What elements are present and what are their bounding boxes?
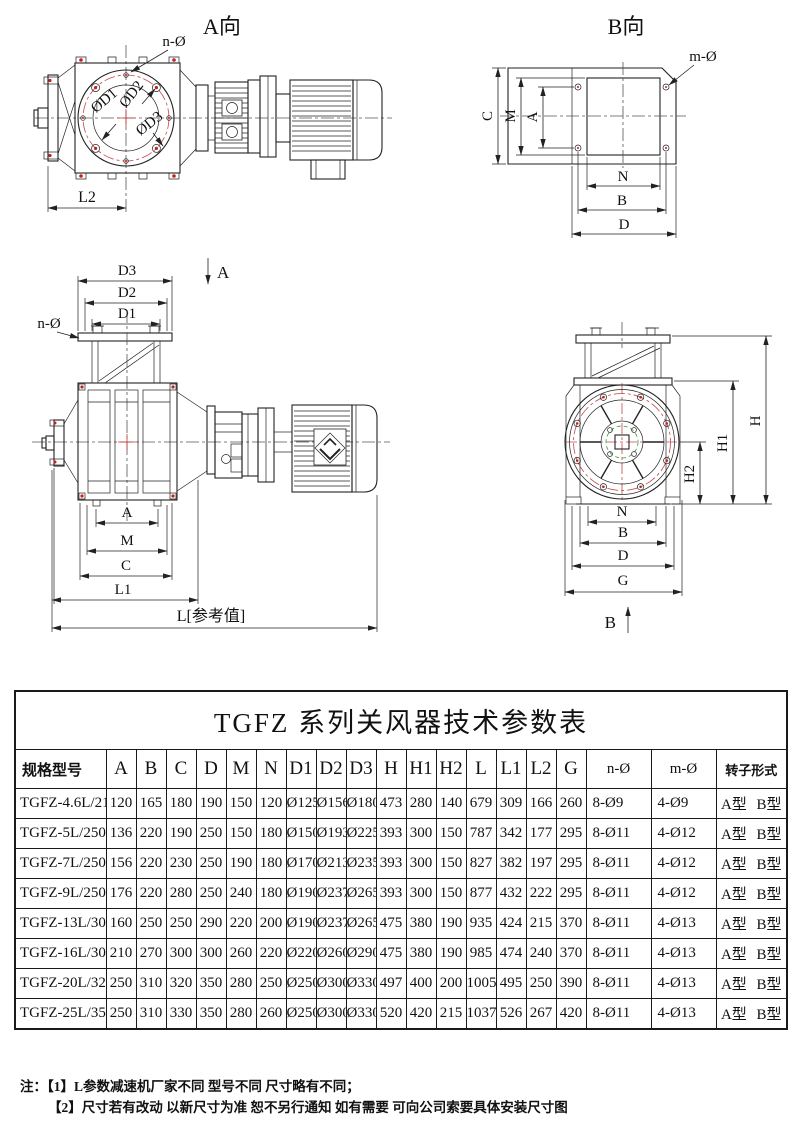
model-cell: TGFZ-9L/250 bbox=[15, 879, 106, 909]
value-cell: Ø213 bbox=[316, 849, 346, 879]
note-prefix: 注： bbox=[20, 1079, 47, 1094]
value-cell: 190 bbox=[226, 849, 256, 879]
value-cell: 4-Ø13 bbox=[651, 969, 716, 999]
value-cell: 220 bbox=[136, 819, 166, 849]
a-dim-label: A bbox=[525, 111, 541, 122]
value-cell: 393 bbox=[376, 819, 406, 849]
value-cell: 4-Ø12 bbox=[651, 879, 716, 909]
value-cell: Ø250 bbox=[286, 999, 316, 1030]
value-cell: 342 bbox=[496, 819, 526, 849]
m-dim-front: M bbox=[120, 533, 133, 549]
value-cell: 935 bbox=[466, 909, 496, 939]
value-cell: A型 B型 bbox=[716, 819, 787, 849]
column-header: n-Ø bbox=[586, 750, 651, 789]
value-cell: 420 bbox=[406, 999, 436, 1030]
model-cell: TGFZ-20L/320 bbox=[15, 969, 106, 999]
value-cell: 309 bbox=[496, 789, 526, 819]
column-header: H1 bbox=[406, 750, 436, 789]
value-cell: 220 bbox=[136, 879, 166, 909]
value-cell: 8-Ø11 bbox=[586, 939, 651, 969]
value-cell: 4-Ø13 bbox=[651, 939, 716, 969]
value-cell: 4-Ø12 bbox=[651, 849, 716, 879]
value-cell: 267 bbox=[526, 999, 556, 1030]
value-cell: 295 bbox=[556, 849, 586, 879]
value-cell: 310 bbox=[136, 969, 166, 999]
column-header: 规格型号 bbox=[15, 750, 106, 789]
value-cell: 8-Ø11 bbox=[586, 999, 651, 1030]
d-dim-label: D bbox=[619, 217, 630, 233]
value-cell: 4-Ø9 bbox=[651, 789, 716, 819]
value-cell: A型 B型 bbox=[716, 969, 787, 999]
front-view-drawing: A D3 D2 D1 n-Ø bbox=[32, 258, 390, 632]
table-row: TGFZ-7L/250156220230250190180Ø170Ø213Ø23… bbox=[15, 849, 787, 879]
column-header: D bbox=[196, 750, 226, 789]
value-cell: 497 bbox=[376, 969, 406, 999]
value-cell: 260 bbox=[226, 939, 256, 969]
column-header: M bbox=[226, 750, 256, 789]
section-b-label: B bbox=[605, 613, 616, 632]
value-cell: 290 bbox=[196, 909, 226, 939]
value-cell: 220 bbox=[256, 939, 286, 969]
value-cell: 679 bbox=[466, 789, 496, 819]
value-cell: A型 B型 bbox=[716, 879, 787, 909]
table-row: TGFZ-9L/250176220280250240180Ø190Ø237Ø26… bbox=[15, 879, 787, 909]
value-cell: 320 bbox=[166, 969, 196, 999]
b-dim-end: B bbox=[618, 525, 628, 541]
value-cell: Ø190 bbox=[286, 909, 316, 939]
value-cell: Ø156 bbox=[316, 789, 346, 819]
table-header-row: 规格型号ABCDMND1D2D3HH1H2LL1L2Gn-Øm-Ø转子形式 bbox=[15, 750, 787, 789]
value-cell: 8-Ø11 bbox=[586, 819, 651, 849]
value-cell: 300 bbox=[406, 849, 436, 879]
l2-dim-label: L2 bbox=[78, 189, 96, 206]
motor bbox=[290, 80, 353, 160]
value-cell: A型 B型 bbox=[716, 789, 787, 819]
value-cell: Ø265 bbox=[346, 909, 376, 939]
value-cell: Ø300 bbox=[316, 999, 346, 1030]
value-cell: 280 bbox=[406, 789, 436, 819]
g-dim-label: G bbox=[618, 573, 629, 589]
value-cell: 495 bbox=[496, 969, 526, 999]
value-cell: 4-Ø12 bbox=[651, 819, 716, 849]
value-cell: A型 B型 bbox=[716, 999, 787, 1030]
value-cell: 150 bbox=[436, 879, 466, 909]
value-cell: 190 bbox=[196, 789, 226, 819]
column-header: H bbox=[376, 750, 406, 789]
d3-dia-label: ØD3 bbox=[133, 109, 166, 140]
value-cell: 295 bbox=[556, 879, 586, 909]
column-header: L bbox=[466, 750, 496, 789]
value-cell: 250 bbox=[256, 969, 286, 999]
inlet-flange-front bbox=[78, 326, 172, 383]
table-row: TGFZ-5L/250136220190250150180Ø150Ø193Ø22… bbox=[15, 819, 787, 849]
value-cell: Ø290 bbox=[346, 939, 376, 969]
value-cell: Ø180 bbox=[346, 789, 376, 819]
value-cell: 526 bbox=[496, 999, 526, 1030]
value-cell: 370 bbox=[556, 909, 586, 939]
value-cell: 300 bbox=[166, 939, 196, 969]
l-ref-dim-label: L[参考值] bbox=[177, 607, 245, 625]
column-header: A bbox=[106, 750, 136, 789]
table-row: TGFZ-20L/320250310320350280250Ø250Ø300Ø3… bbox=[15, 969, 787, 999]
value-cell: 380 bbox=[406, 939, 436, 969]
shaft-end-front bbox=[42, 400, 78, 483]
value-cell: 382 bbox=[496, 849, 526, 879]
value-cell: Ø235 bbox=[346, 849, 376, 879]
value-cell: 250 bbox=[106, 999, 136, 1030]
value-cell: 220 bbox=[136, 849, 166, 879]
valve-housing-front bbox=[78, 383, 177, 506]
value-cell: 250 bbox=[526, 969, 556, 999]
value-cell: 250 bbox=[196, 879, 226, 909]
value-cell: 190 bbox=[436, 939, 466, 969]
a-view-drawing: A向 bbox=[34, 14, 392, 215]
value-cell: 8-Ø11 bbox=[586, 969, 651, 999]
column-header: 转子形式 bbox=[716, 750, 787, 789]
value-cell: 400 bbox=[406, 969, 436, 999]
value-cell: 432 bbox=[496, 879, 526, 909]
value-cell: 220 bbox=[226, 909, 256, 939]
value-cell: 330 bbox=[166, 999, 196, 1030]
datasheet-page: A向 bbox=[0, 0, 800, 1145]
value-cell: 300 bbox=[196, 939, 226, 969]
gearbox-motor-side bbox=[180, 70, 382, 179]
value-cell: 250 bbox=[136, 909, 166, 939]
d2-dim-label: D2 bbox=[118, 285, 136, 301]
h-dim-label: H bbox=[748, 415, 764, 426]
value-cell: 393 bbox=[376, 849, 406, 879]
column-header: C bbox=[166, 750, 196, 789]
value-cell: 280 bbox=[226, 999, 256, 1030]
value-cell: 380 bbox=[406, 909, 436, 939]
value-cell: 250 bbox=[196, 849, 226, 879]
value-cell: 8-Ø11 bbox=[586, 849, 651, 879]
value-cell: 350 bbox=[196, 999, 226, 1030]
value-cell: 200 bbox=[256, 909, 286, 939]
value-cell: 160 bbox=[106, 909, 136, 939]
value-cell: 475 bbox=[376, 909, 406, 939]
value-cell: 787 bbox=[466, 819, 496, 849]
d3-dim-label: D3 bbox=[118, 263, 136, 279]
technical-drawings: A向 bbox=[0, 0, 800, 660]
value-cell: 197 bbox=[526, 849, 556, 879]
value-cell: 310 bbox=[136, 999, 166, 1030]
value-cell: Ø237 bbox=[316, 879, 346, 909]
value-cell: 120 bbox=[106, 789, 136, 819]
b-dim-label: B bbox=[617, 193, 627, 209]
value-cell: 250 bbox=[106, 969, 136, 999]
value-cell: 190 bbox=[166, 819, 196, 849]
column-header: D3 bbox=[346, 750, 376, 789]
parameter-table: TGFZ 系列关风器技术参数表 规格型号ABCDMND1D2D3HH1H2LL1… bbox=[14, 690, 788, 1030]
value-cell: 180 bbox=[256, 879, 286, 909]
table-row: TGFZ-16L/300210270300300260220Ø220Ø260Ø2… bbox=[15, 939, 787, 969]
value-cell: A型 B型 bbox=[716, 939, 787, 969]
value-cell: Ø260 bbox=[316, 939, 346, 969]
table-title-row: TGFZ 系列关风器技术参数表 bbox=[15, 691, 787, 750]
value-cell: A型 B型 bbox=[716, 909, 787, 939]
value-cell: Ø220 bbox=[286, 939, 316, 969]
a-dim-front: A bbox=[122, 505, 133, 521]
d2-dia-label: ØD2 bbox=[117, 78, 148, 111]
value-cell: 136 bbox=[106, 819, 136, 849]
model-cell: TGFZ-25L/350 bbox=[15, 999, 106, 1030]
value-cell: 8-Ø11 bbox=[586, 909, 651, 939]
n-dim-label: N bbox=[618, 169, 629, 185]
h1-dim-label: H1 bbox=[715, 434, 731, 452]
value-cell: Ø225 bbox=[346, 819, 376, 849]
value-cell: 350 bbox=[196, 969, 226, 999]
column-header: H2 bbox=[436, 750, 466, 789]
value-cell: 270 bbox=[136, 939, 166, 969]
value-cell: Ø190 bbox=[286, 879, 316, 909]
h2-dim-label: H2 bbox=[682, 465, 698, 483]
value-cell: 200 bbox=[436, 969, 466, 999]
value-cell: 150 bbox=[226, 819, 256, 849]
section-a-label: A bbox=[217, 263, 230, 282]
model-cell: TGFZ-7L/250 bbox=[15, 849, 106, 879]
corner-bolt-holes bbox=[575, 84, 669, 151]
value-cell: 474 bbox=[496, 939, 526, 969]
column-header: G bbox=[556, 750, 586, 789]
column-header: D2 bbox=[316, 750, 346, 789]
a-view-title: A向 bbox=[203, 14, 241, 39]
d-dim-end: D bbox=[618, 548, 629, 564]
value-cell: 177 bbox=[526, 819, 556, 849]
b-view-drawing: B向 m-Ø C M A N B D bbox=[480, 14, 717, 238]
value-cell: 390 bbox=[556, 969, 586, 999]
value-cell: 280 bbox=[226, 969, 256, 999]
table-row: TGFZ-4.6L/210120165180190150120Ø125Ø156Ø… bbox=[15, 789, 787, 819]
value-cell: 260 bbox=[556, 789, 586, 819]
n-hole-label: n-Ø bbox=[162, 34, 185, 50]
value-cell: 180 bbox=[166, 789, 196, 819]
m-hole-label: m-Ø bbox=[689, 49, 717, 65]
value-cell: 150 bbox=[436, 819, 466, 849]
value-cell: 190 bbox=[436, 909, 466, 939]
table-row: TGFZ-13L/300160250250290220200Ø190Ø237Ø2… bbox=[15, 909, 787, 939]
value-cell: 260 bbox=[256, 999, 286, 1030]
value-cell: 985 bbox=[466, 939, 496, 969]
value-cell: Ø150 bbox=[286, 819, 316, 849]
value-cell: Ø330 bbox=[346, 969, 376, 999]
l1-dim-label: L1 bbox=[115, 582, 132, 598]
b-view-title: B向 bbox=[608, 14, 645, 39]
flange-opening bbox=[587, 78, 660, 155]
value-cell: 230 bbox=[166, 849, 196, 879]
model-cell: TGFZ-16L/300 bbox=[15, 939, 106, 969]
value-cell: 424 bbox=[496, 909, 526, 939]
value-cell: 166 bbox=[526, 789, 556, 819]
column-header: L2 bbox=[526, 750, 556, 789]
model-cell: TGFZ-5L/250 bbox=[15, 819, 106, 849]
value-cell: Ø265 bbox=[346, 879, 376, 909]
value-cell: 4-Ø13 bbox=[651, 999, 716, 1030]
value-cell: 827 bbox=[466, 849, 496, 879]
value-cell: 420 bbox=[556, 999, 586, 1030]
value-cell: 150 bbox=[226, 789, 256, 819]
column-header: L1 bbox=[496, 750, 526, 789]
note-line-2: 【2】尺寸若有改动 以新尺寸为准 恕不另行通知 如有需要 可向公司索要具体安装尺… bbox=[48, 1097, 568, 1118]
value-cell: 295 bbox=[556, 819, 586, 849]
value-cell: 520 bbox=[376, 999, 406, 1030]
m-dim-label: M bbox=[503, 109, 519, 122]
value-cell: 1005 bbox=[466, 969, 496, 999]
model-cell: TGFZ-4.6L/210 bbox=[15, 789, 106, 819]
column-header: B bbox=[136, 750, 166, 789]
value-cell: Ø170 bbox=[286, 849, 316, 879]
value-cell: 393 bbox=[376, 879, 406, 909]
value-cell: 150 bbox=[436, 849, 466, 879]
value-cell: 180 bbox=[256, 819, 286, 849]
value-cell: Ø237 bbox=[316, 909, 346, 939]
column-header: D1 bbox=[286, 750, 316, 789]
value-cell: Ø125 bbox=[286, 789, 316, 819]
value-cell: 180 bbox=[256, 849, 286, 879]
value-cell: 1037 bbox=[466, 999, 496, 1030]
column-header: N bbox=[256, 750, 286, 789]
table-title: TGFZ 系列关风器技术参数表 bbox=[15, 691, 787, 750]
value-cell: 240 bbox=[526, 939, 556, 969]
value-cell: 250 bbox=[196, 819, 226, 849]
value-cell: Ø300 bbox=[316, 969, 346, 999]
value-cell: 120 bbox=[256, 789, 286, 819]
c-dim-label: C bbox=[480, 111, 496, 121]
note-line-1: 注：【1】L参数减速机厂家不同 型号不同 尺寸略有不同； bbox=[20, 1076, 568, 1097]
value-cell: 215 bbox=[436, 999, 466, 1030]
value-cell: Ø193 bbox=[316, 819, 346, 849]
value-cell: 8-Ø11 bbox=[586, 879, 651, 909]
value-cell: Ø330 bbox=[346, 999, 376, 1030]
value-cell: Ø250 bbox=[286, 969, 316, 999]
value-cell: 877 bbox=[466, 879, 496, 909]
model-cell: TGFZ-13L/300 bbox=[15, 909, 106, 939]
c-dim-front: C bbox=[121, 558, 131, 574]
value-cell: 8-Ø9 bbox=[586, 789, 651, 819]
value-cell: 475 bbox=[376, 939, 406, 969]
value-cell: A型 B型 bbox=[716, 849, 787, 879]
value-cell: 300 bbox=[406, 819, 436, 849]
value-cell: 370 bbox=[556, 939, 586, 969]
value-cell: 165 bbox=[136, 789, 166, 819]
notes: 注：【1】L参数减速机厂家不同 型号不同 尺寸略有不同； 【2】尺寸若有改动 以… bbox=[20, 1076, 568, 1118]
table-row: TGFZ-25L/350250310330350280260Ø250Ø300Ø3… bbox=[15, 999, 787, 1030]
value-cell: 240 bbox=[226, 879, 256, 909]
end-view-drawing: H2 H1 H N B D G B bbox=[565, 322, 772, 633]
value-cell: 210 bbox=[106, 939, 136, 969]
value-cell: 222 bbox=[526, 879, 556, 909]
value-cell: 473 bbox=[376, 789, 406, 819]
value-cell: 156 bbox=[106, 849, 136, 879]
value-cell: 4-Ø13 bbox=[651, 909, 716, 939]
value-cell: 215 bbox=[526, 909, 556, 939]
value-cell: 176 bbox=[106, 879, 136, 909]
n-dim-end: N bbox=[617, 504, 628, 520]
value-cell: 280 bbox=[166, 879, 196, 909]
value-cell: 140 bbox=[436, 789, 466, 819]
n-hole-label-front: n-Ø bbox=[37, 316, 60, 332]
column-header: m-Ø bbox=[651, 750, 716, 789]
value-cell: 300 bbox=[406, 879, 436, 909]
value-cell: 250 bbox=[166, 909, 196, 939]
